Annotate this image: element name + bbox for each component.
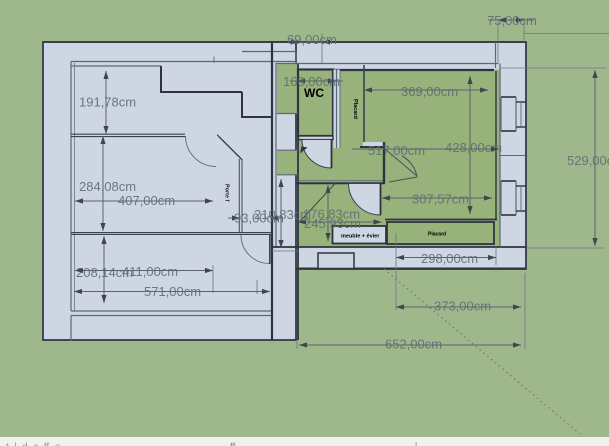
svg-text:Porte f: Porte f (224, 184, 230, 202)
svg-text:307,57cm: 307,57cm (412, 192, 469, 207)
svg-text:meuble + évier: meuble + évier (341, 234, 380, 240)
svg-text:245,93cm: 245,93cm (304, 216, 361, 231)
svg-text:369,00cm: 369,00cm (401, 84, 458, 99)
svg-text:Placard: Placard (352, 99, 358, 119)
svg-text:69,00cm: 69,00cm (287, 32, 337, 47)
svg-text:529,00cm: 529,00cm (567, 153, 609, 168)
svg-text:411,00cm: 411,00cm (122, 264, 178, 279)
svg-text:407,00cm: 407,00cm (118, 193, 175, 208)
svg-text:168,00cm: 168,00cm (283, 74, 340, 89)
svg-text:517,00cm: 517,00cm (368, 143, 425, 158)
svg-text:571,00cm: 571,00cm (144, 284, 201, 299)
svg-text:191,78cm: 191,78cm (79, 95, 136, 110)
svg-text:298,00cm: 298,00cm (421, 251, 478, 266)
svg-text:284,08cm: 284,08cm (79, 179, 136, 194)
svg-text:75,00cm: 75,00cm (487, 13, 537, 28)
svg-text:ff: ff (230, 442, 236, 446)
svg-text:Placard: Placard (428, 232, 446, 238)
svg-text:t. l. d. c. ff. e: t. l. d. c. ff. e (6, 442, 61, 446)
svg-text:l: l (415, 442, 417, 446)
svg-text:373,00cm: 373,00cm (434, 299, 491, 314)
svg-text:652,00cm: 652,00cm (385, 337, 442, 352)
